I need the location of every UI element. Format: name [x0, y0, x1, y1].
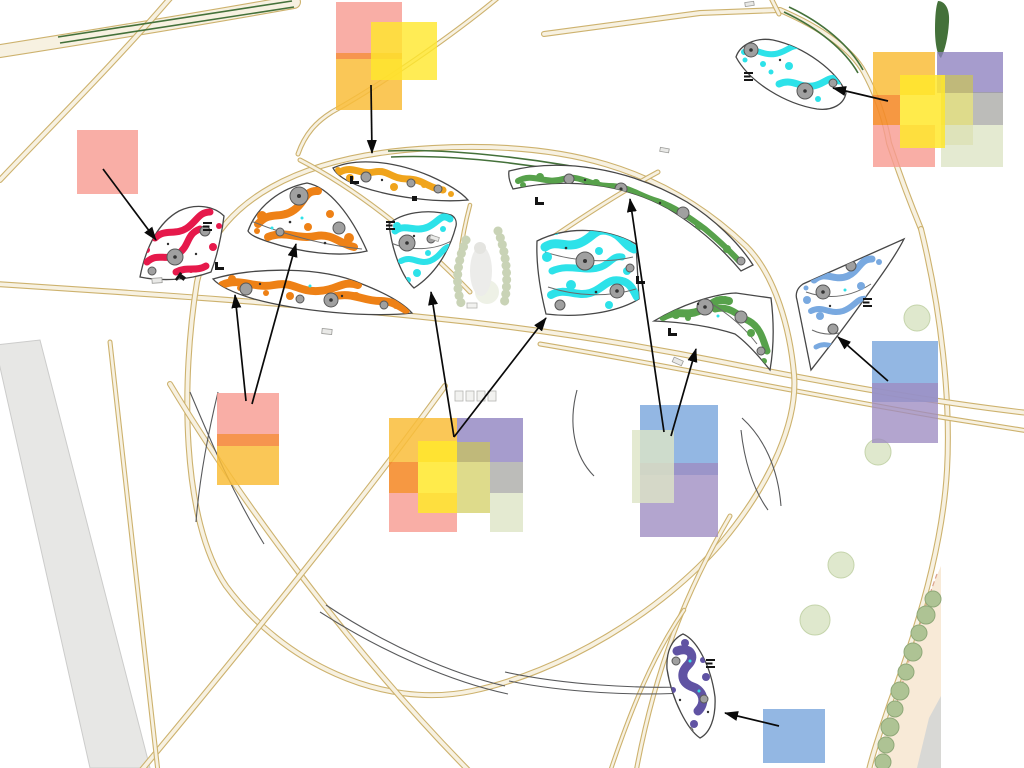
bed-orange-lower — [213, 270, 412, 314]
marker-icon — [412, 196, 417, 201]
bed-cyan-topright — [736, 39, 846, 109]
park-plan-map — [0, 0, 1024, 768]
marker-icon — [636, 276, 645, 284]
bed-blue — [796, 239, 904, 370]
street-furniture — [152, 1, 754, 365]
central-plaza — [455, 231, 507, 401]
road-path — [298, 0, 500, 154]
road-surface — [170, 384, 470, 768]
bed-purple — [667, 634, 715, 738]
road-path — [0, 284, 1024, 413]
road-surface — [0, 284, 1024, 413]
road-surface — [540, 344, 1024, 431]
bed-cyan-fan — [389, 212, 456, 288]
plaza-kiosks — [455, 303, 496, 401]
site-plan-canvas — [0, 0, 1024, 768]
riverside-gray-band — [0, 340, 150, 768]
road-path — [170, 384, 470, 768]
marker-icon — [535, 197, 544, 205]
road-surface — [544, 10, 921, 229]
road-surface — [0, 0, 172, 180]
marker-icon — [215, 262, 224, 270]
bed-cyan-large — [537, 229, 639, 315]
park-roads — [0, 0, 1024, 768]
marker-icon — [706, 659, 715, 668]
marker-icon — [863, 298, 872, 307]
road-path — [544, 10, 921, 229]
marker-icon — [668, 328, 677, 336]
bed-red — [140, 206, 224, 279]
